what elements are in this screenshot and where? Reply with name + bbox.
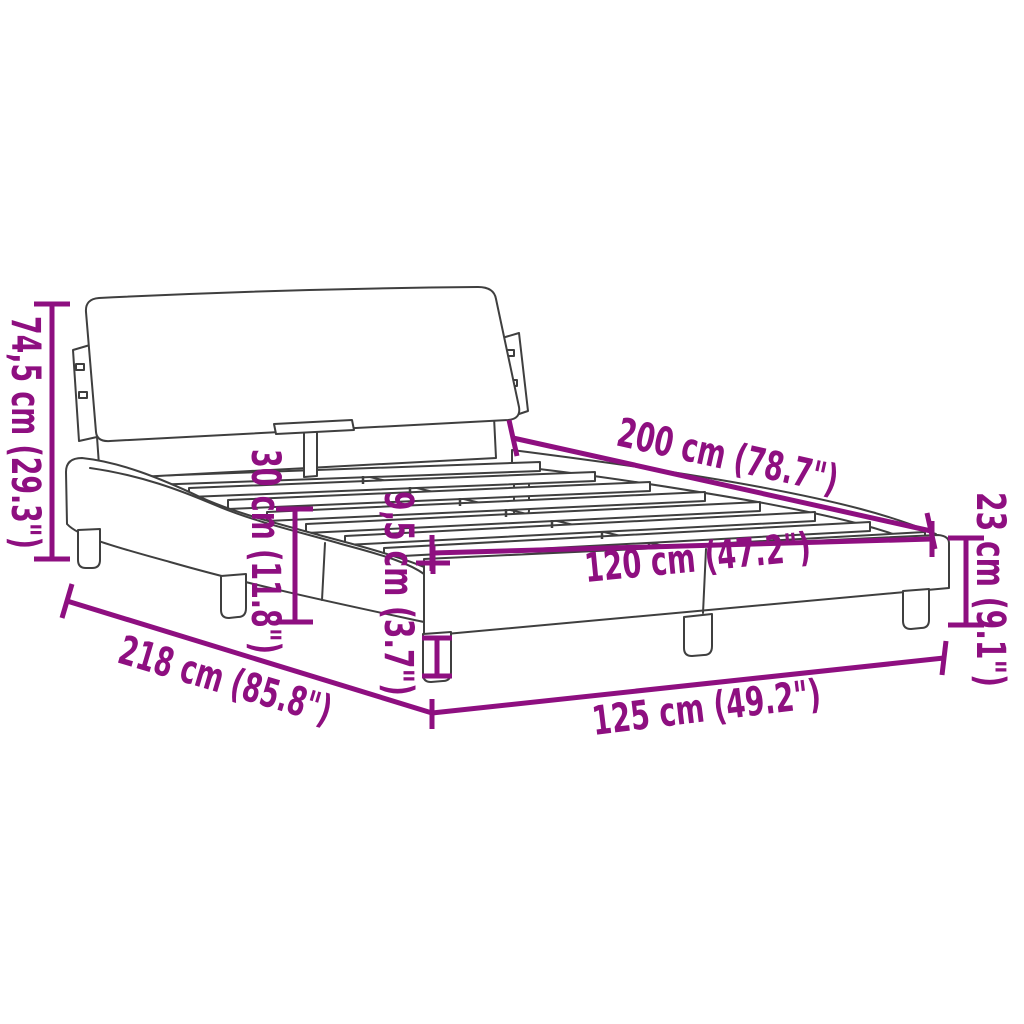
- dim-label-rail-height: 30 cm (11.8"): [242, 449, 288, 654]
- dim-label-frame-height: 23 cm (9.1"): [967, 492, 1013, 687]
- bed-frame-diagram-page: 74,5 cm (29.3") 200 cm (78.7") 30 cm (11…: [0, 0, 1024, 1024]
- dim-label-headboard-height: 74,5 cm (29.3"): [2, 316, 48, 549]
- leg-headboard-left: [78, 529, 100, 568]
- headboard-cushion: [86, 287, 519, 441]
- bed-frame-diagram: 74,5 cm (29.3") 200 cm (78.7") 30 cm (11…: [0, 0, 1024, 1024]
- headboard: [73, 287, 528, 479]
- leg-foot-right: [903, 589, 929, 629]
- dim-label-leg-height: 9,5 cm (3.7"): [375, 491, 421, 696]
- leg-foot-center: [684, 614, 712, 656]
- dim-label-total-length: 218 cm (85.8"): [113, 627, 337, 734]
- headboard-center-post: [304, 430, 317, 477]
